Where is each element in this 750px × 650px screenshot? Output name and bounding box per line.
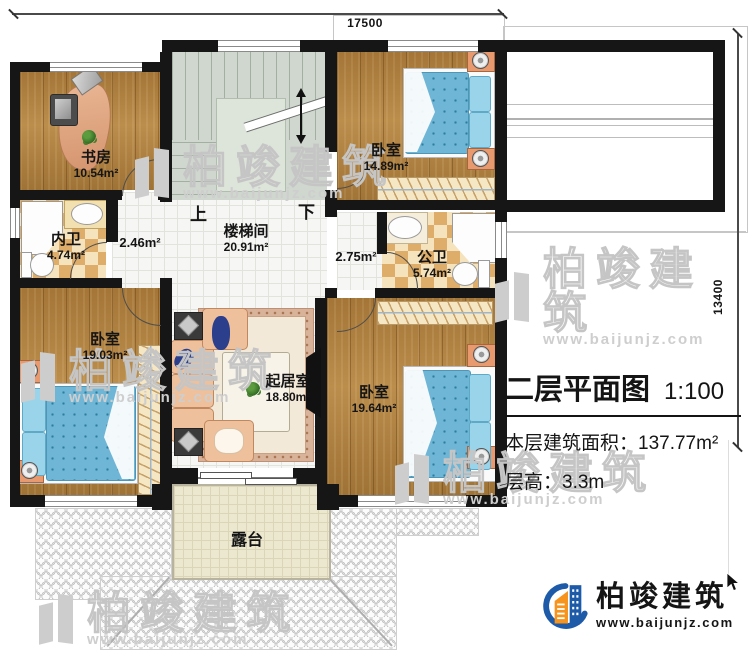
room-label-bedroom-top: 卧室 14.89m² [343,143,429,173]
room-name: 卧室 [322,385,426,402]
wall [158,190,172,200]
room-area: 4.74m² [26,249,106,262]
window [218,40,300,52]
dimension-line-top [12,13,504,15]
room-area: 19.64m² [322,402,426,415]
room-name: 公卫 [392,250,472,267]
plant [82,130,96,144]
room-area: 14.89m² [343,160,429,173]
dimension-height: 13400 [711,279,725,315]
void-room-line [507,118,713,120]
window [388,40,478,52]
dimension-width: 17500 [300,16,430,30]
arrow-head-down [296,135,306,144]
window [495,222,507,258]
room-area: 19.03m² [55,349,155,362]
room-area: 5.74m² [392,267,472,280]
lamp [21,462,38,479]
plan-title: 二层平面图 [505,366,650,408]
title-block: 二层平面图 1:100 本层建筑面积：137.77m² 层高：3.3m [505,366,741,494]
lamp [473,448,490,465]
arrow-head-up [296,88,306,97]
stair-down-label: 下 [298,198,315,223]
pillow [22,388,46,432]
wall [325,200,507,210]
room-label-inner-bath: 内卫 4.74m² [26,232,106,262]
void-room-line [507,104,713,105]
wall [293,468,327,484]
plan-scale: 1:100 [664,378,724,406]
room-area: 2.46m² [100,236,180,251]
room-name: 卧室 [343,143,429,160]
wall [160,288,172,495]
room-name: 内卫 [26,232,106,249]
room-label-hall-left: 2.46m² [100,236,180,251]
window [10,208,20,238]
wall [160,468,198,484]
wall [152,484,172,510]
room-label-bedroom-left: 卧室 19.03m² [55,332,155,362]
stair-direction-arrow [300,96,302,136]
lamp [21,362,38,379]
room-label-terrace: 露台 [212,532,282,550]
window [45,495,137,507]
logo-brand-text: 柏竣建筑 [596,582,734,614]
logo-url-text: www.baijunjz.com [596,615,734,630]
company-logo-icon [538,578,588,634]
toilet-tank [478,260,490,288]
stair-treads [172,142,216,200]
sink [388,216,422,239]
window [358,495,466,507]
extension-line [500,231,746,232]
wall [325,40,337,152]
void-room-line [507,137,713,138]
wall [325,288,337,298]
room-name: 书房 [46,150,146,167]
wall [160,278,172,288]
room-area: 2.75m² [316,250,396,265]
room-label-hall-right: 2.75m² [316,250,396,265]
room-name: 楼梯间 [196,224,296,241]
wall [713,52,725,200]
void-room-floor [507,52,713,200]
pillow [469,76,491,112]
lamp [473,346,490,363]
sink [71,203,103,225]
lamp [472,52,489,69]
plan-title-row: 二层平面图 1:100 [505,366,741,417]
wall [495,40,725,52]
wall [317,484,339,510]
void-room-line [507,125,713,126]
stair-up-label: 上 [190,200,207,225]
floor-area-row: 本层建筑面积：137.77m² [505,428,741,455]
room-label-stairwell: 楼梯间 20.91m² [196,224,296,254]
lamp [472,150,489,167]
monitor-screen [55,99,71,119]
room-label-public-bath: 公卫 5.74m² [392,250,472,280]
wall [495,200,725,212]
mouse-cursor [726,572,741,593]
sofa-cushion [170,374,214,408]
roof-bottom [100,576,397,650]
wall [106,192,118,242]
wardrobe [377,301,493,325]
room-label-study: 书房 10.54m² [46,150,146,180]
room-name: 露台 [212,532,282,550]
company-logo: 柏竣建筑 www.baijunjz.com [538,578,734,634]
floorplan-canvas: 17500 13400 [0,0,750,650]
armchair-cushion [214,428,244,454]
wall [375,288,507,298]
room-name: 卧室 [55,332,155,349]
floor-height-label: 层高： [505,472,562,493]
wall [160,52,172,202]
room-label-bedroom-bottom: 卧室 19.64m² [322,385,426,415]
window [50,62,142,72]
wall [10,278,122,288]
room-area: 10.54m² [46,167,146,180]
floor-height-value: 3.3m [562,472,604,493]
room-area: 20.91m² [196,241,296,254]
pillow [469,112,491,148]
sliding-door-panel [245,478,297,485]
floor-area-value: 137.77m² [638,433,718,454]
floor-area-label: 本层建筑面积： [505,433,638,454]
watermark-logo-icon [36,593,78,647]
watermark-url: www.baijunjz.com [543,332,750,347]
wall [377,212,387,254]
person-figure [212,316,230,350]
floor-height-row: 层高：3.3m [505,467,741,494]
pillow [469,374,491,422]
